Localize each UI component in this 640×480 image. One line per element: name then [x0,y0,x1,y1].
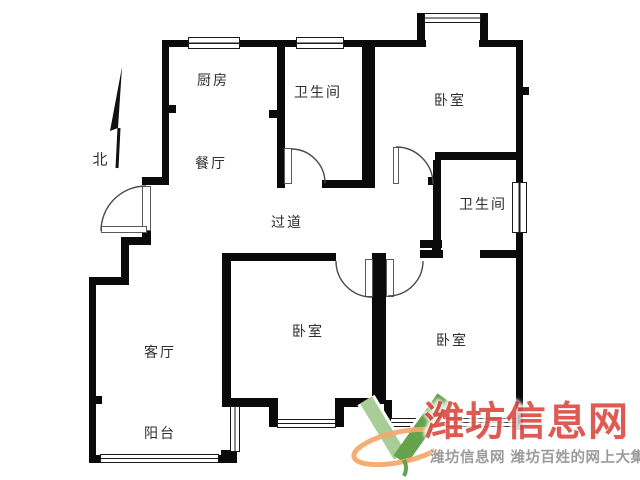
logo-v-left [366,400,400,456]
room-label-bathroom1: 卫生间 [294,82,342,102]
watermark-tagline: 潍坊信息网 潍坊百姓的网上大集 [430,446,640,467]
entry-door-arc [101,186,146,231]
bathroom1-door-arc [291,149,325,183]
north-arrow-head [110,67,122,131]
watermark-site-name: 潍坊信息网 [424,399,629,445]
room-label-dining: 餐厅 [195,153,227,173]
room-label-bedroom1: 卧室 [434,90,466,110]
room-label-bedroom3: 卧室 [436,330,468,350]
room-label-bedroom2: 卧室 [292,321,324,341]
room-label-kitchen: 厨房 [197,70,229,90]
bedroom1-door-arc [396,147,433,184]
room-label-hallway: 过道 [271,212,303,232]
logo-sprout [404,460,406,476]
room-label-bathroom2: 卫生间 [459,194,507,214]
floor-plan: 厨房 卫生间 卧室 餐厅 过道 卫生间 客厅 卧室 卧室 阳台 北 潍坊信息网 … [0,0,640,480]
north-label: 北 [92,149,109,170]
room-label-living: 客厅 [144,342,176,362]
north-arrow-stem [117,128,119,168]
bedroom2-door-arc [336,261,372,297]
room-label-balcony: 阳台 [144,423,176,443]
bedroom3-door-arc [388,261,423,296]
